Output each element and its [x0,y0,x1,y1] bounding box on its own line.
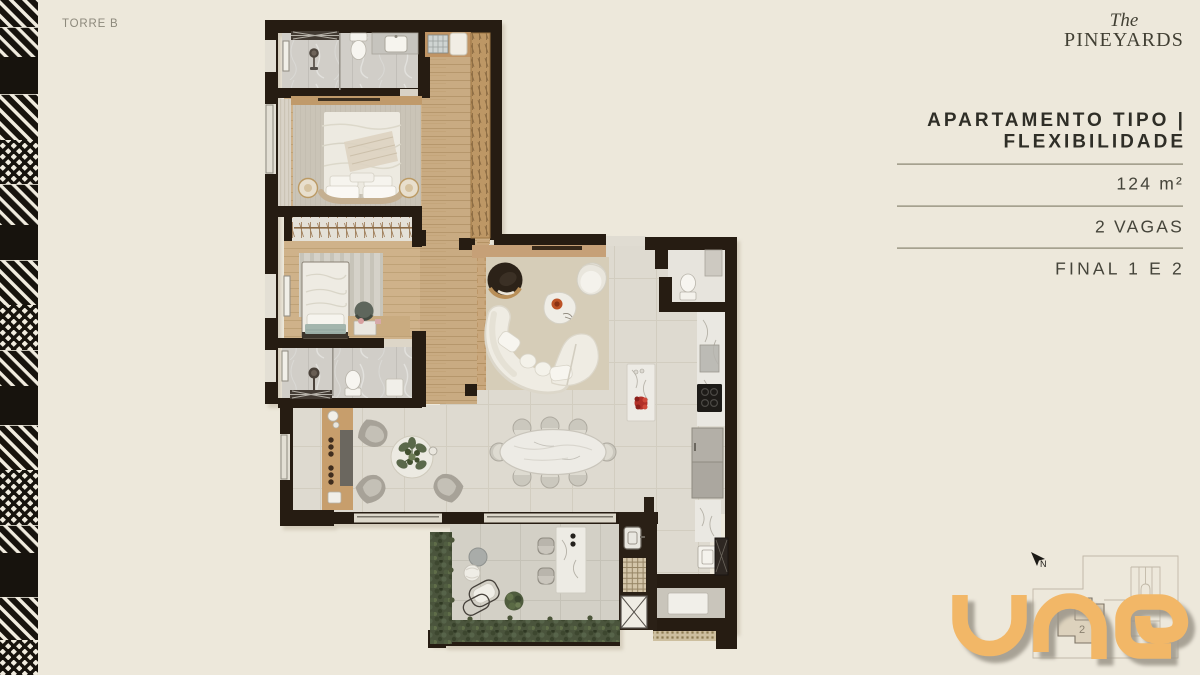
svg-text:TORRE B: TORRE B [62,18,119,30]
svg-text:N: N [1040,559,1047,569]
svg-text:124 m²: 124 m² [1116,174,1184,194]
svg-text:FINAL 1 E 2: FINAL 1 E 2 [1055,259,1185,279]
svg-text:The: The [1110,10,1139,31]
svg-text:2 VAGAS: 2 VAGAS [1095,217,1184,237]
svg-text:PINEYARDS: PINEYARDS [1064,29,1184,51]
svg-text:APARTAMENTO TIPO |: APARTAMENTO TIPO | [927,110,1186,131]
svg-text:FLEXIBILIDADE: FLEXIBILIDADE [1003,132,1186,153]
svg-text:2: 2 [1079,624,1085,636]
